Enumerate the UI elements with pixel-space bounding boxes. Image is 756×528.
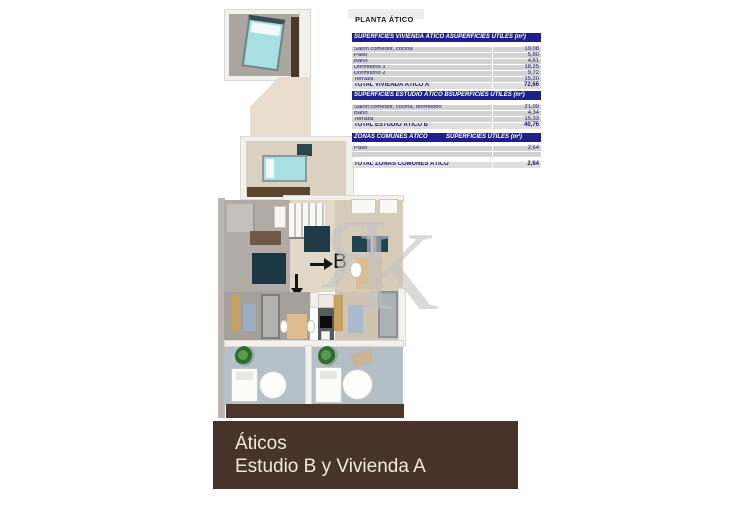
watermark-letter-k: K — [358, 228, 439, 318]
counter-navy — [252, 253, 286, 284]
table-row: Paso5,80 — [352, 53, 541, 58]
spacer-row — [352, 142, 541, 145]
terrace-divider-wall — [305, 345, 312, 405]
row-label: Salón comedor, cocina, dormitorio — [352, 105, 492, 110]
spacer-row — [352, 158, 541, 161]
cabinet-brown — [250, 231, 281, 245]
table-vivienda-a: SUPERFICIES VIVIENDA ÁTICO A SUPERFICIES… — [352, 33, 541, 89]
table-header: SUPERFICIES VIVIENDA ÁTICO A SUPERFICIES… — [352, 33, 541, 42]
bed-pillow — [250, 22, 280, 36]
stove — [320, 316, 332, 328]
chair — [280, 320, 288, 333]
surface-tables: SUPERFICIES VIVIENDA ÁTICO A SUPERFICIES… — [352, 33, 541, 169]
terrace-table — [342, 369, 373, 400]
total-label: TOTAL ESTUDIO ÁTICO B — [352, 123, 492, 129]
bed-estudio — [262, 155, 307, 182]
table-zonas-comunes: ZONAS COMUNES ÁTICO SUPERFICIES ÚTILES (… — [352, 133, 541, 168]
row-label: Dormitorio 1 — [352, 65, 492, 70]
sink — [321, 331, 330, 340]
table-header-right: SUPERFICIES ÚTILES (m²) — [449, 91, 541, 100]
spacer-row — [352, 42, 541, 46]
row-label: Terraza — [352, 117, 492, 122]
table-total-row: TOTAL ZONAS COMUNES ÁTICO2,64 — [352, 162, 541, 168]
bed-pillow — [266, 159, 274, 178]
table-row: Dormitorio 118,25 — [352, 65, 541, 70]
door-a — [232, 295, 240, 332]
row-label: Salón comedor, cocina — [352, 47, 492, 52]
table-header-left: ZONAS COMUNES ÁTICO — [352, 133, 446, 142]
table-total-row: TOTAL VIVIENDA ÁTICO A72,66 — [352, 83, 541, 89]
total-value: 72,66 — [492, 83, 541, 89]
dining-table-a — [287, 314, 307, 339]
row-label — [352, 152, 492, 157]
brochure-page: B A Я K PLANTA ÁTICO SUPERFICIES VIVIEND… — [0, 0, 756, 528]
banner-line-2: Estudio B y Vivienda A — [235, 455, 518, 478]
terrace-table — [259, 371, 287, 399]
table-estudio-b: SUPERFICIES ESTUDIO ÁTICO B SUPERFICIES … — [352, 91, 541, 129]
chair — [307, 320, 315, 333]
table-header: ZONAS COMUNES ÁTICO SUPERFICIES ÚTILES (… — [352, 133, 541, 142]
plan-title: PLANTA ÁTICO — [355, 15, 414, 24]
table-row: Paso2,64 — [352, 146, 541, 151]
bed-double — [242, 15, 286, 72]
table-row-empty — [352, 152, 541, 157]
plant-icon — [318, 346, 338, 366]
lounger — [231, 368, 258, 402]
rug-a — [243, 304, 256, 331]
table-row: Salón comedor, cocina, dormitorio21,09 — [352, 105, 541, 110]
building-bottom-edge — [226, 404, 404, 418]
banner-line-1: Áticos — [235, 432, 518, 455]
table-header-left: SUPERFICIES VIVIENDA ÁTICO A — [352, 33, 450, 42]
total-label: TOTAL ZONAS COMUNES ÁTICO — [352, 162, 492, 168]
total-label: TOTAL VIVIENDA ÁTICO A — [352, 83, 492, 89]
row-label: Terraza — [352, 77, 492, 82]
table-row: Baño4,61 — [352, 59, 541, 64]
table-header-right: SUPERFICIES ÚTILES (m²) — [446, 133, 541, 142]
terrace-wall — [224, 340, 404, 347]
hall-diagonal-floor — [248, 77, 310, 143]
table-header: SUPERFICIES ESTUDIO ÁTICO B SUPERFICIES … — [352, 91, 541, 100]
spacer-row — [352, 100, 541, 104]
row-label: Baño — [352, 111, 492, 116]
plant-icon — [235, 346, 255, 366]
lounger — [315, 367, 342, 403]
row-label: Paso — [352, 146, 492, 151]
row-value: 2,64 — [492, 146, 541, 151]
table-row: Terraza15,20 — [352, 77, 541, 82]
row-label: Baño — [352, 59, 492, 64]
table-header-right: SUPERFICIES ÚTILES (m²) — [450, 33, 541, 42]
cabinet-gray — [227, 204, 255, 232]
sofa-a — [261, 294, 280, 339]
table-row: Baño4,34 — [352, 111, 541, 116]
table-row: Terraza15,33 — [352, 117, 541, 122]
table-total-row: TOTAL ESTUDIO ÁTICO B40,76 — [352, 123, 541, 129]
table-row: Dormitorio 29,72 — [352, 71, 541, 76]
total-value: 2,64 — [492, 162, 541, 168]
total-value: 40,76 — [492, 123, 541, 129]
table-header-left: SUPERFICIES ESTUDIO ÁTICO B — [352, 91, 449, 100]
table-row: Salón comedor, cocina19,08 — [352, 47, 541, 52]
row-value — [492, 152, 541, 157]
row-label: Dormitorio 2 — [352, 71, 492, 76]
title-banner: Áticos Estudio B y Vivienda A — [213, 421, 518, 489]
row-label: Paso — [352, 53, 492, 58]
fixture-white — [274, 206, 286, 228]
arrow-down-icon — [295, 274, 298, 288]
